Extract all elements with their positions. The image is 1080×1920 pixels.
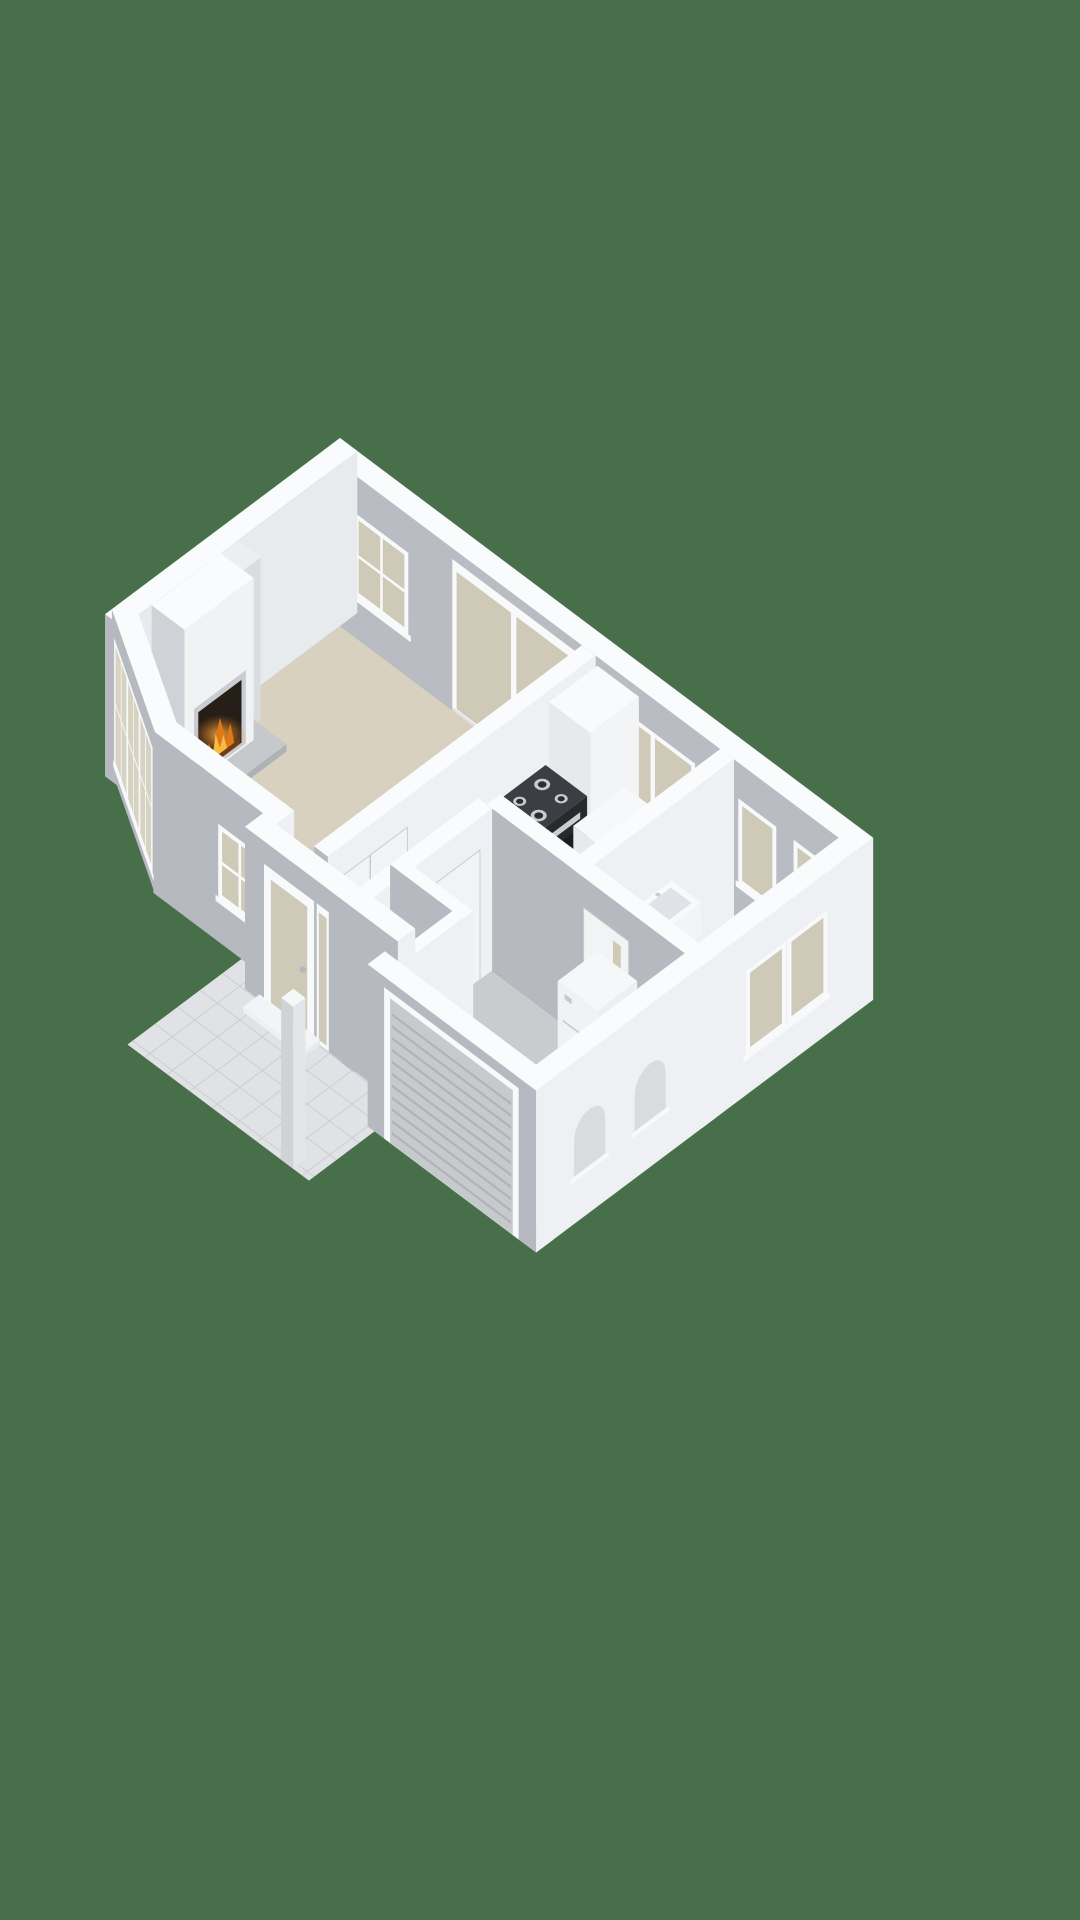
floorplan-3d-render [0,0,1080,1920]
porch-pillar [281,989,305,1169]
floorplan-stage [0,0,1080,1920]
